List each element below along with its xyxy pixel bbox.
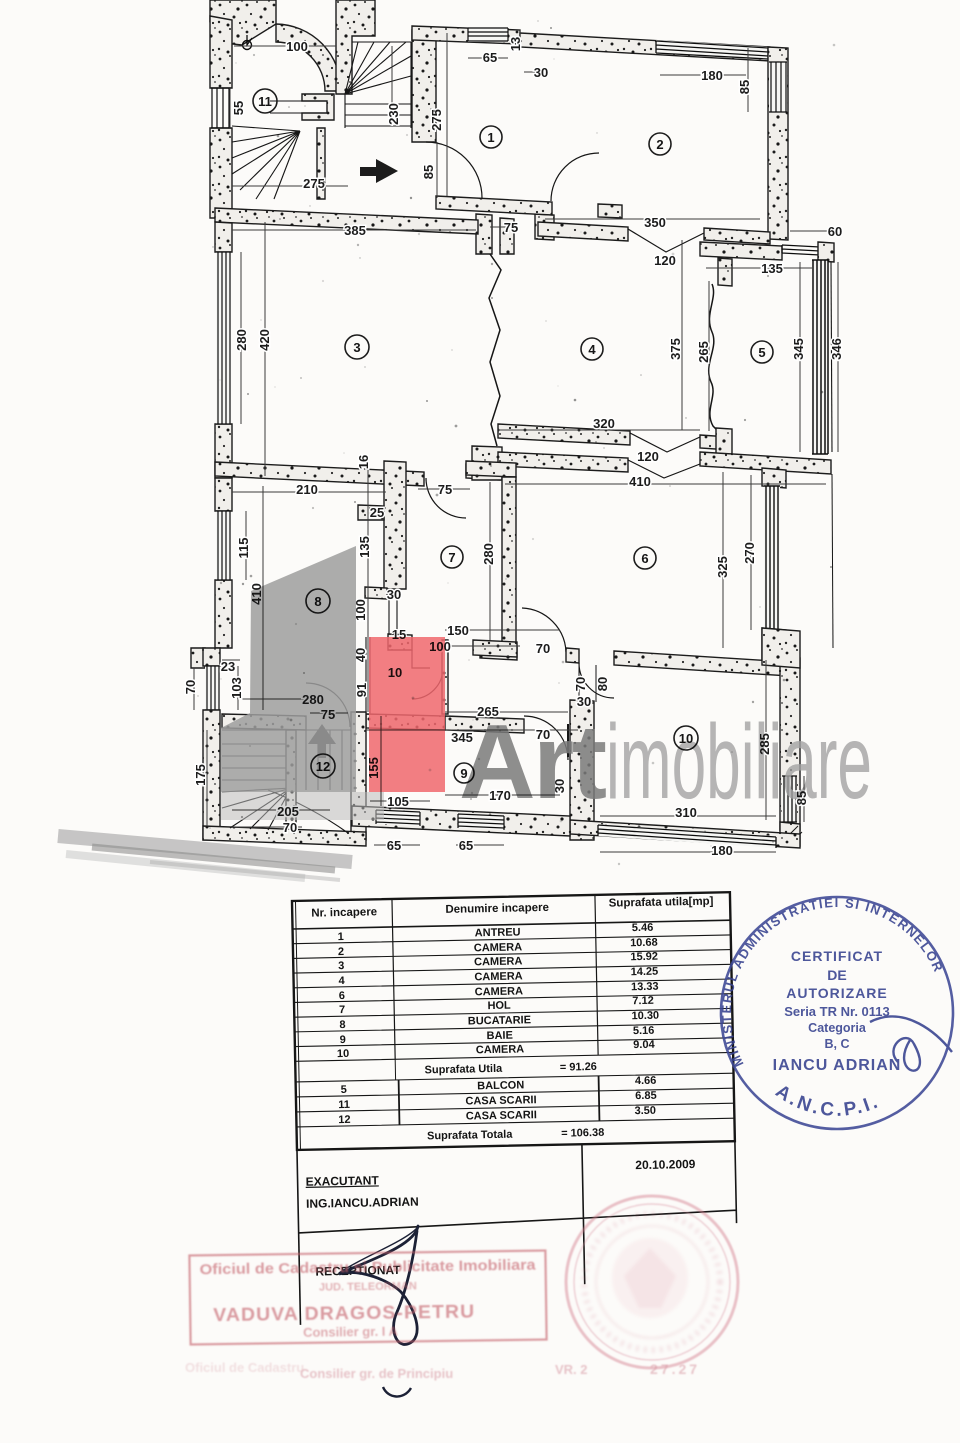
svg-text:imobiliare: imobiliare	[606, 703, 872, 821]
svg-text:10: 10	[337, 1048, 349, 1060]
svg-text:55: 55	[231, 101, 246, 115]
svg-text:Suprafata Utila: Suprafata Utila	[424, 1063, 503, 1077]
svg-text:150: 150	[447, 623, 469, 638]
svg-text:25: 25	[370, 505, 384, 520]
svg-text:385: 385	[344, 223, 366, 238]
svg-text:85: 85	[421, 165, 436, 179]
svg-text:65: 65	[459, 838, 473, 853]
svg-text:B, C: B, C	[825, 1037, 850, 1051]
svg-text:346: 346	[829, 338, 844, 360]
svg-text:Categoria: Categoria	[808, 1021, 867, 1035]
svg-text:420: 420	[257, 329, 272, 351]
svg-text:65: 65	[387, 838, 401, 853]
svg-text:3: 3	[338, 960, 344, 972]
svg-text:Suprafata utila[mp]: Suprafata utila[mp]	[609, 896, 714, 910]
svg-text:275: 275	[303, 176, 325, 191]
svg-text:70: 70	[183, 680, 198, 694]
svg-text:Seria TR Nr. 0113: Seria TR Nr. 0113	[784, 1004, 890, 1019]
svg-text:180: 180	[701, 68, 723, 83]
svg-text:135: 135	[357, 536, 372, 558]
svg-text:BUCATARIE: BUCATARIE	[468, 1014, 531, 1027]
svg-text:75: 75	[504, 220, 518, 235]
svg-text:8: 8	[339, 1019, 345, 1031]
svg-text:AUTORIZARE: AUTORIZARE	[786, 985, 888, 1001]
svg-text:280: 280	[481, 543, 496, 565]
svg-text:5: 5	[341, 1084, 347, 1096]
svg-text:2: 2	[656, 137, 663, 152]
svg-text:180: 180	[711, 843, 733, 858]
svg-text:Denumire incapere: Denumire incapere	[445, 902, 549, 916]
svg-text:CAMERA: CAMERA	[476, 1043, 525, 1056]
svg-text:5: 5	[758, 345, 765, 360]
svg-text:Oficiul de Cadastru: Oficiul de Cadastru	[185, 1360, 304, 1375]
svg-text:HOL: HOL	[487, 1000, 511, 1012]
svg-text:175: 175	[193, 764, 208, 786]
svg-text:6.85: 6.85	[635, 1090, 657, 1102]
svg-text:4: 4	[338, 975, 345, 987]
svg-text:270: 270	[742, 542, 757, 564]
svg-text:3: 3	[353, 340, 360, 355]
svg-text:10.30: 10.30	[631, 1010, 659, 1023]
svg-text:320: 320	[593, 416, 615, 431]
svg-text:20.10.2009: 20.10.2009	[635, 1157, 696, 1172]
svg-text:7: 7	[339, 1004, 345, 1016]
svg-text:JUD. TELEORMAN: JUD. TELEORMAN	[319, 1280, 417, 1293]
svg-text:350: 350	[644, 215, 666, 230]
svg-text:= 91.26: = 91.26	[560, 1061, 597, 1074]
svg-text:Suprafata Totala: Suprafata Totala	[427, 1129, 513, 1143]
svg-text:103: 103	[229, 677, 244, 699]
svg-text:EXACUTANT: EXACUTANT	[305, 1173, 379, 1188]
svg-text:CASA SCARII: CASA SCARII	[465, 1094, 536, 1107]
svg-text:23: 23	[221, 659, 235, 674]
svg-text:15.92: 15.92	[630, 951, 658, 964]
svg-text:30: 30	[387, 587, 401, 602]
svg-text:91: 91	[354, 683, 369, 697]
svg-text:CAMERA: CAMERA	[474, 955, 523, 968]
svg-text:9.04: 9.04	[633, 1039, 656, 1051]
svg-text:30: 30	[534, 65, 548, 80]
svg-text:BALCON: BALCON	[477, 1079, 524, 1092]
svg-text:210: 210	[296, 482, 318, 497]
svg-text:VADUVA DRAGOS-PETRU: VADUVA DRAGOS-PETRU	[213, 1302, 475, 1326]
svg-text:2: 2	[338, 946, 344, 958]
svg-text:Consilier gr. de Principiu: Consilier gr. de Principiu	[300, 1366, 453, 1381]
svg-text:IANCU ADRIAN: IANCU ADRIAN	[773, 1057, 902, 1074]
svg-text:6: 6	[339, 990, 345, 1002]
svg-text:345: 345	[791, 338, 806, 360]
svg-text:CERTIFICAT: CERTIFICAT	[791, 948, 883, 964]
svg-text:16: 16	[356, 455, 371, 469]
svg-text:265: 265	[696, 341, 711, 363]
svg-text:75: 75	[438, 482, 452, 497]
svg-text:VR. 2: VR. 2	[555, 1362, 588, 1377]
svg-text:70: 70	[283, 820, 297, 835]
svg-text:7.12: 7.12	[632, 995, 654, 1007]
svg-text:CAMERA: CAMERA	[475, 985, 524, 998]
svg-text:BAIE: BAIE	[486, 1030, 513, 1043]
svg-text:9: 9	[340, 1034, 346, 1046]
svg-text:65: 65	[483, 50, 497, 65]
svg-text:Consilier gr. I A: Consilier gr. I A	[303, 1324, 399, 1340]
svg-text:7: 7	[448, 550, 455, 565]
svg-text:4: 4	[588, 342, 596, 357]
svg-text:85: 85	[737, 80, 752, 94]
svg-text:120: 120	[637, 449, 659, 464]
svg-text:11: 11	[258, 94, 272, 109]
svg-text:CAMERA: CAMERA	[474, 941, 523, 954]
svg-text:14.25: 14.25	[631, 966, 659, 979]
svg-text:230: 230	[386, 103, 401, 125]
svg-text:5.16: 5.16	[633, 1025, 655, 1037]
svg-text:CASA SCARII: CASA SCARII	[466, 1109, 537, 1122]
svg-text:ANTREU: ANTREU	[475, 926, 521, 939]
svg-text:80: 80	[595, 677, 610, 691]
svg-text:280: 280	[234, 329, 249, 351]
svg-text:410: 410	[629, 474, 651, 489]
svg-text:27.27: 27.27	[650, 1361, 700, 1377]
svg-text:275: 275	[429, 109, 444, 131]
svg-text:4.66: 4.66	[635, 1075, 657, 1087]
svg-text:100: 100	[286, 39, 308, 54]
svg-text:70: 70	[536, 641, 550, 656]
svg-text:70: 70	[573, 677, 588, 691]
svg-text:60: 60	[828, 224, 842, 239]
svg-text:13.33: 13.33	[631, 981, 659, 994]
svg-text:10.68: 10.68	[630, 937, 658, 950]
svg-text:= 106.38: = 106.38	[561, 1127, 604, 1140]
svg-text:12: 12	[338, 1114, 350, 1126]
svg-text:115: 115	[236, 538, 251, 559]
svg-text:375: 375	[668, 338, 683, 360]
svg-text:Nr. incapere: Nr. incapere	[311, 906, 377, 919]
svg-text:11: 11	[338, 1099, 350, 1111]
svg-text:105: 105	[387, 794, 409, 809]
svg-text:135: 135	[761, 261, 783, 276]
svg-text:1: 1	[338, 931, 344, 943]
svg-text:DE: DE	[827, 967, 846, 983]
svg-text:5.46: 5.46	[632, 922, 654, 934]
svg-text:1: 1	[487, 130, 494, 145]
svg-text:Art: Art	[459, 703, 607, 821]
svg-text:13: 13	[508, 37, 523, 51]
svg-text:325: 325	[715, 556, 730, 578]
svg-text:CAMERA: CAMERA	[474, 970, 523, 983]
svg-text:6: 6	[641, 551, 648, 566]
svg-text:ING.IANCU.ADRIAN: ING.IANCU.ADRIAN	[306, 1195, 419, 1211]
svg-text:3.50: 3.50	[634, 1105, 656, 1117]
